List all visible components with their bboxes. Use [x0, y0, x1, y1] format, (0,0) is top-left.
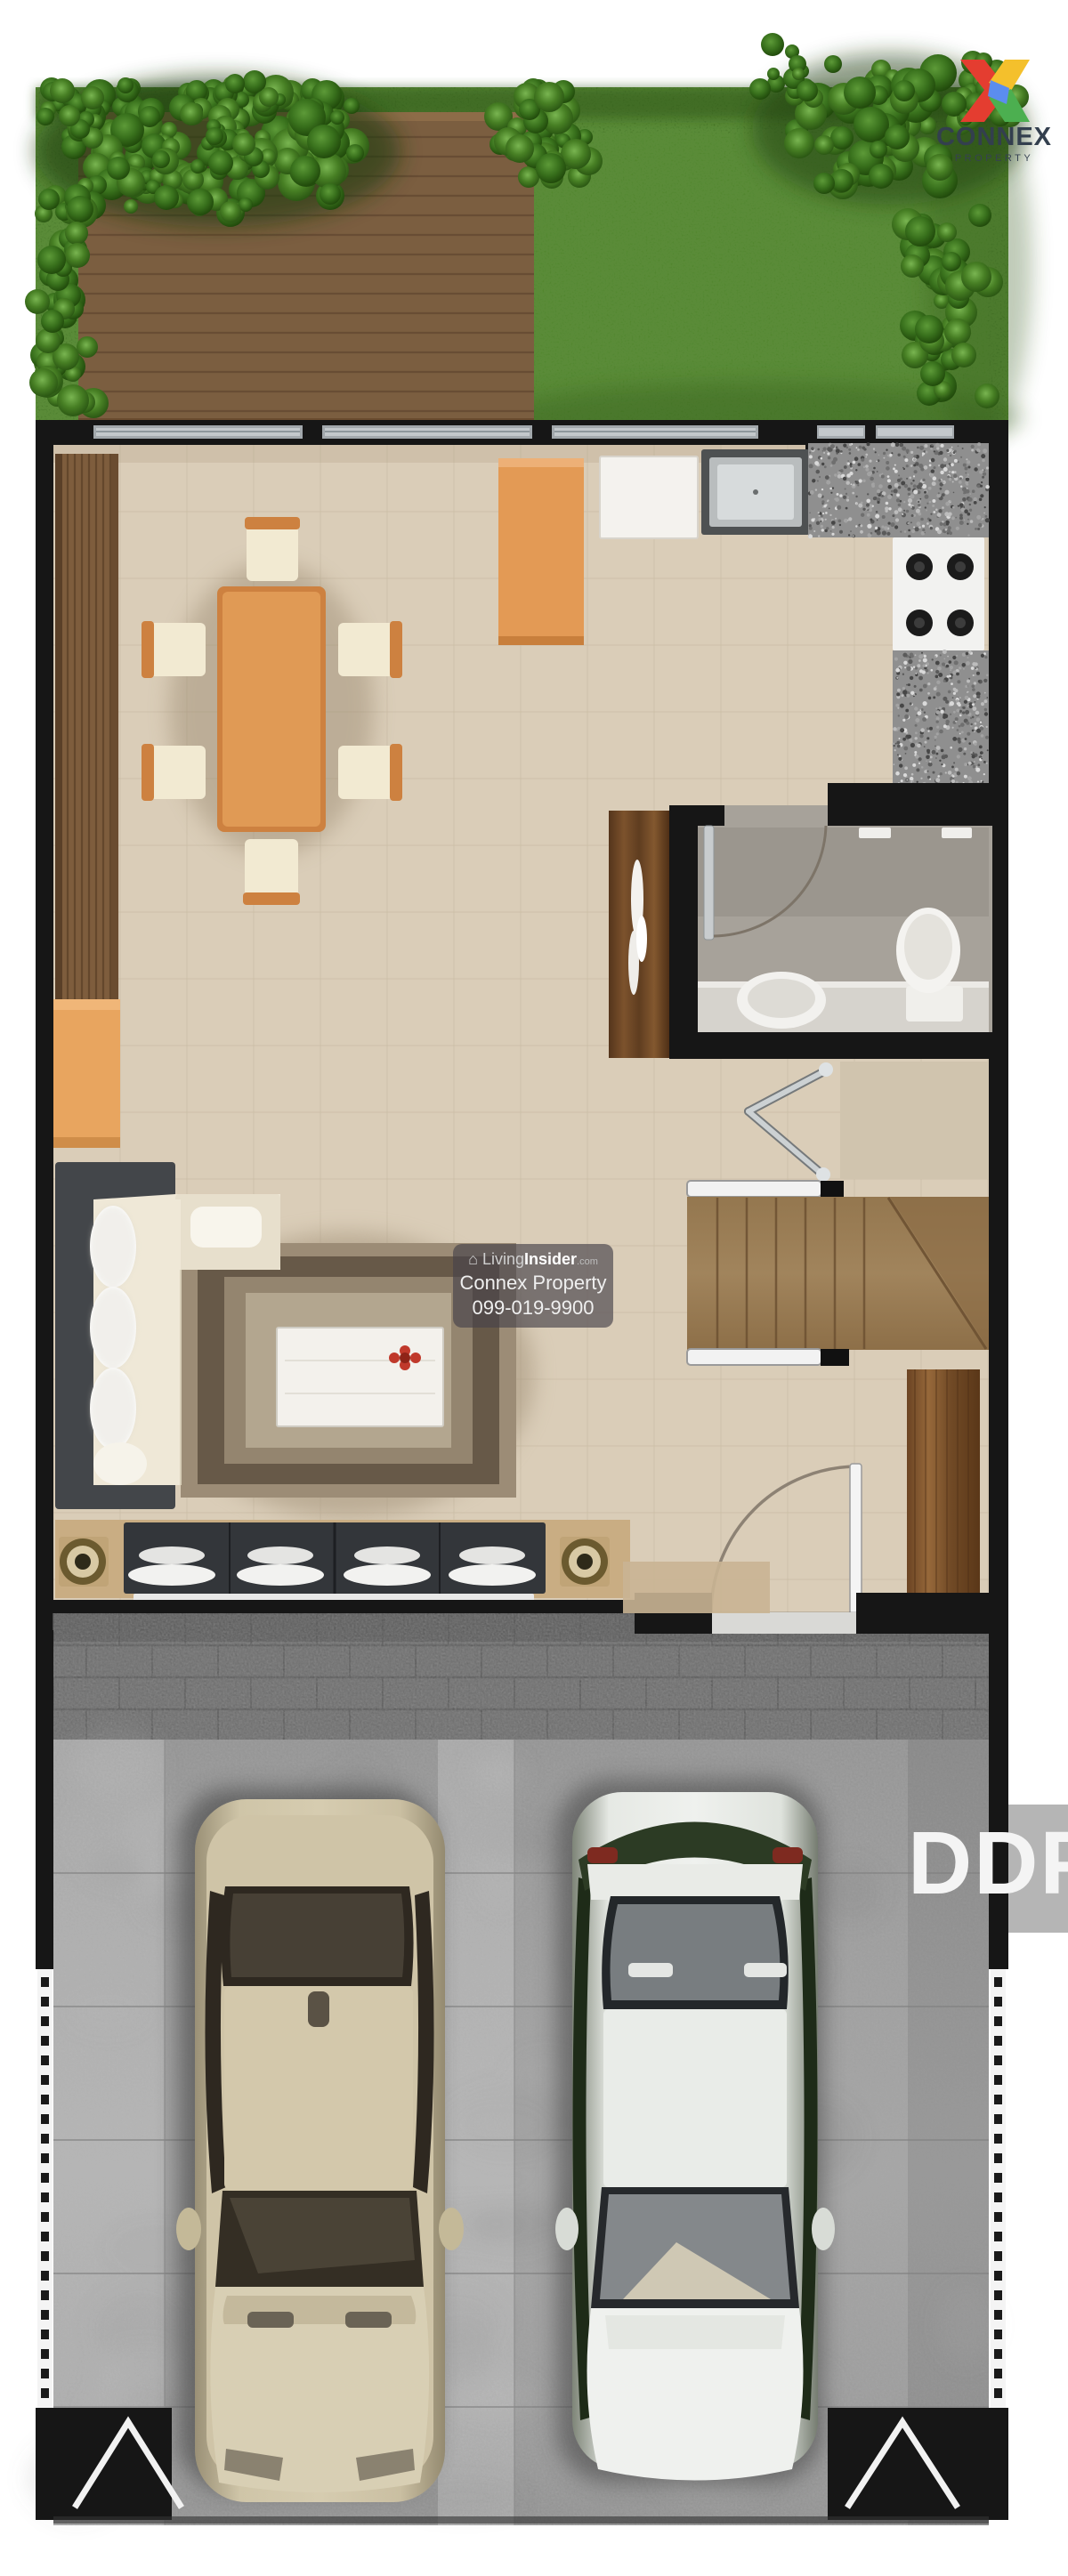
svg-text:PROPERTY: PROPERTY: [955, 153, 1033, 164]
svg-text:DDP: DDP: [908, 1813, 1068, 1913]
svg-text:099-019-9900: 099-019-9900: [472, 1296, 594, 1319]
svg-text:CONNEX: CONNEX: [936, 123, 1052, 151]
svg-text:Connex Property: Connex Property: [459, 1272, 606, 1294]
